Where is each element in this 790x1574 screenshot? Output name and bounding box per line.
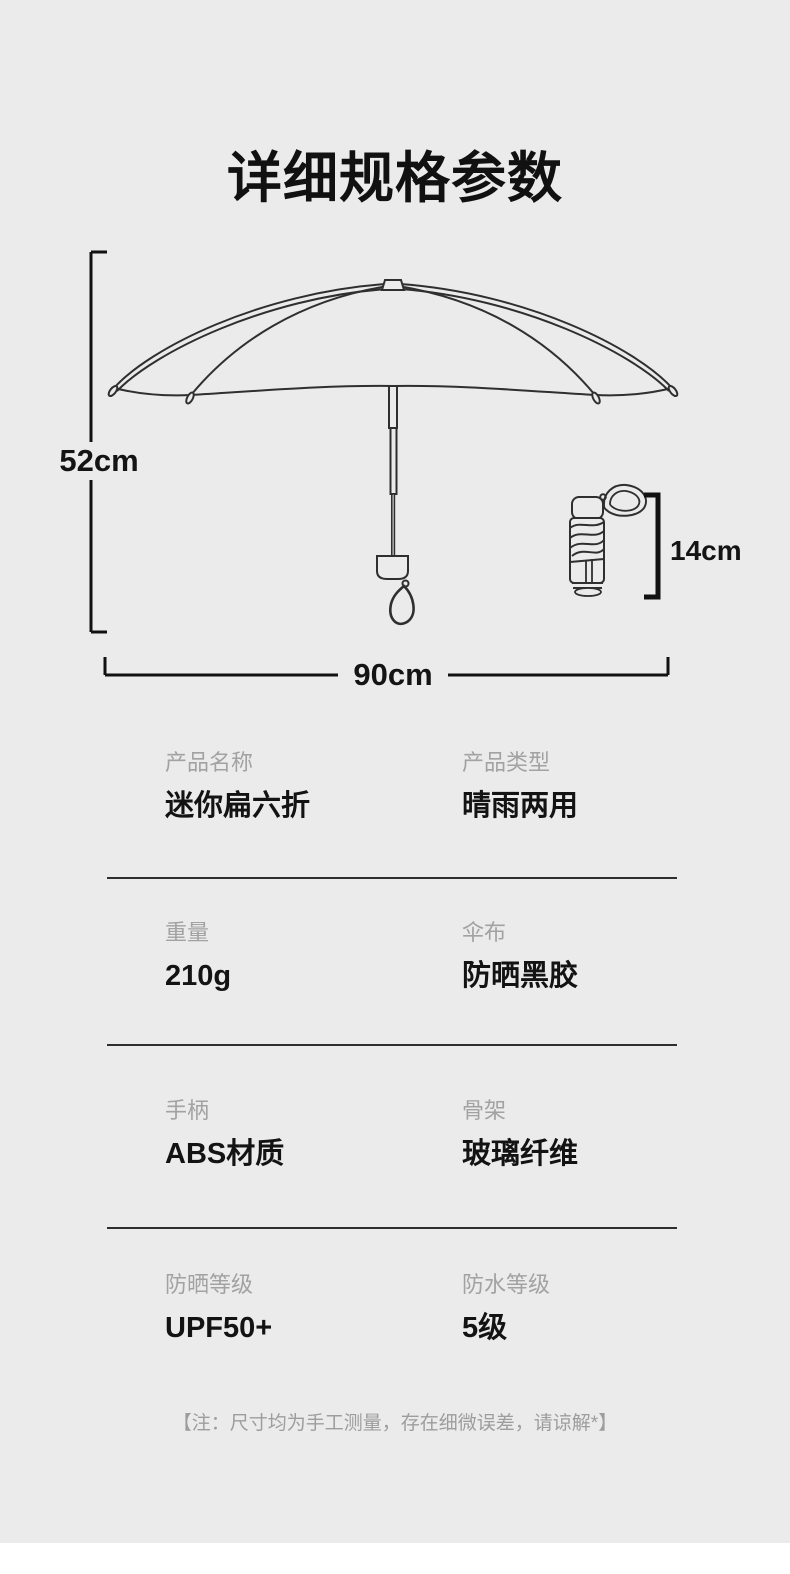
ferrule-tip	[382, 280, 404, 290]
rib-tip-cap	[185, 391, 196, 404]
spec-value: 晴雨两用	[462, 791, 578, 823]
wrist-strap-loop	[390, 586, 413, 624]
spec-label: 手柄	[165, 1100, 284, 1122]
shaft-upper-section	[389, 386, 397, 428]
canopy-left-rib	[191, 286, 388, 395]
folded-body	[570, 518, 604, 583]
spec-value: 防晒黑胶	[462, 961, 578, 993]
spec-label: 重量	[165, 922, 231, 944]
shaft-lower-section	[392, 494, 395, 556]
spec-label: 产品名称	[165, 752, 310, 774]
rib-tip-cap	[667, 385, 679, 398]
height-dimension-bracket	[91, 252, 107, 632]
shaft-middle-section	[391, 428, 397, 494]
spec-label: 防晒等级	[165, 1274, 272, 1296]
spec-label: 产品类型	[462, 752, 578, 774]
spec-item-fabric: 伞布 防晒黑胶	[462, 922, 578, 993]
spec-value: ABS材质	[165, 1139, 284, 1171]
spec-item-handle: 手柄 ABS材质	[165, 1100, 284, 1171]
spec-value: 5级	[462, 1313, 550, 1345]
measurement-note: 【注：尺寸均为手工测量，存在细微误差，请谅解*】	[0, 1408, 790, 1435]
rib-tip-cap	[591, 391, 602, 404]
canopy-right-rib	[398, 286, 595, 395]
canopy-outer-right-edge	[400, 284, 672, 388]
row-divider	[107, 1227, 677, 1229]
spec-value: 迷你扁六折	[165, 791, 310, 823]
row-divider	[107, 1044, 677, 1046]
spec-item-weight: 重量 210g	[165, 922, 231, 993]
spec-label: 伞布	[462, 922, 578, 944]
folded-umbrella-drawing	[570, 485, 646, 596]
bottom-tip	[575, 588, 601, 596]
folded-height-bracket	[644, 495, 658, 597]
spec-value: 玻璃纤维	[462, 1139, 578, 1171]
canopy-outer-left-edge	[114, 284, 386, 388]
spec-item-waterproof-rating: 防水等级 5级	[462, 1274, 550, 1345]
spec-value: UPF50+	[165, 1313, 272, 1345]
open-height-label: 52cm	[59, 443, 138, 478]
spec-item-frame: 骨架 玻璃纤维	[462, 1100, 578, 1171]
handle	[377, 556, 408, 579]
page-title: 详细规格参数	[0, 133, 790, 213]
rib-tip-cap	[107, 385, 119, 398]
open-width-label: 90cm	[353, 657, 432, 692]
spec-item-product-name: 产品名称 迷你扁六折	[165, 752, 310, 823]
row-divider	[107, 877, 677, 879]
spec-label: 防水等级	[462, 1274, 550, 1296]
spec-label: 骨架	[462, 1100, 578, 1122]
spec-item-uv-rating: 防晒等级 UPF50+	[165, 1274, 272, 1345]
folded-top-cap	[572, 497, 603, 519]
umbrella-diagram: 52cm 90cm 14cm	[0, 230, 790, 700]
spec-value: 210g	[165, 961, 231, 993]
spec-item-product-type: 产品类型 晴雨两用	[462, 752, 578, 823]
product-spec-section: 详细规格参数	[0, 0, 790, 1574]
folded-height-label: 14cm	[670, 535, 742, 566]
folded-strap-inner	[610, 491, 639, 511]
